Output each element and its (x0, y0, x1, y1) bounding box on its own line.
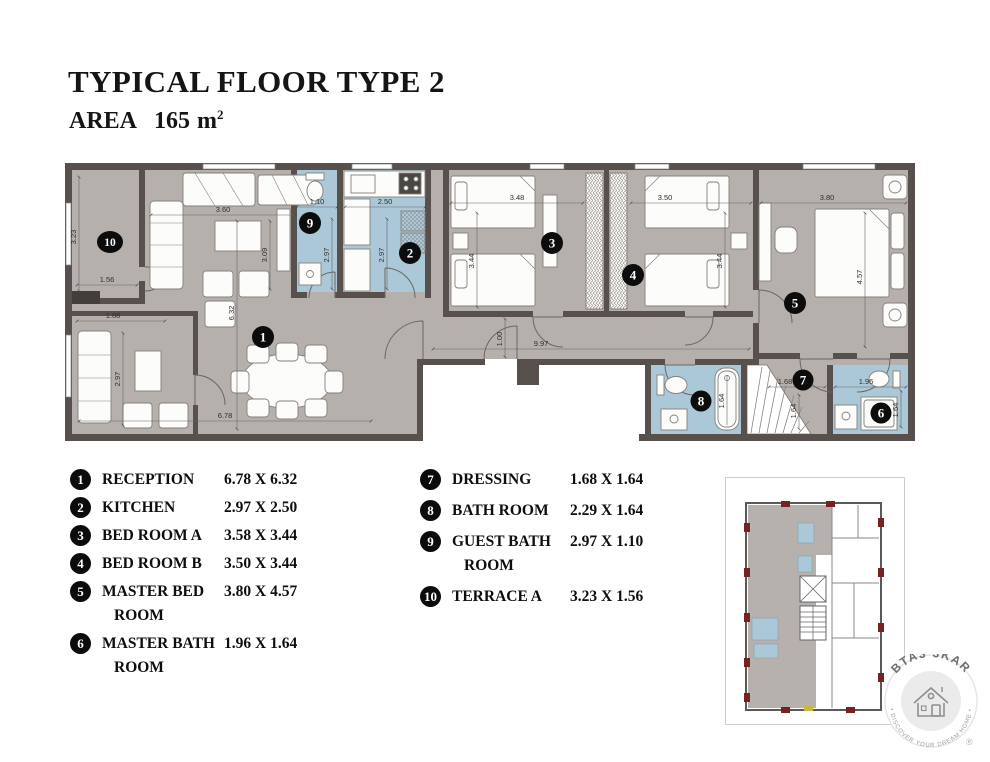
legend-item: 6 MASTER BATHROOM 1.96 X 1.64 (70, 633, 297, 678)
room-name: BED ROOM B (102, 555, 202, 572)
room-number-badge: 7 (420, 469, 441, 490)
dim-terrace-w: 1.56 (100, 275, 115, 284)
room-name: KITCHEN (102, 499, 175, 516)
dim-balcony-w: 1.68 (106, 311, 121, 320)
legend-item: 8 BATH ROOM 2.29 X 1.64 (420, 500, 643, 521)
area-unit: m (197, 108, 217, 134)
svg-text:10: 10 (104, 237, 116, 249)
room-dimensions: 3.58 X 3.44 (224, 525, 297, 546)
svg-text:1: 1 (260, 330, 267, 345)
room-dimensions: 3.50 X 3.44 (224, 553, 297, 574)
dim-corridor-w: 9.97 (534, 339, 549, 348)
dim-beda-h: 3.44 (467, 254, 476, 269)
legend-item: 9 GUEST BATHROOM 2.97 X 1.10 (420, 531, 643, 576)
room-number-badge: 10 (420, 586, 441, 607)
svg-text:6: 6 (878, 406, 885, 421)
room-name: TERRACE A (452, 588, 542, 605)
dim-terrace-h: 3.23 (69, 230, 78, 245)
key-plan-drawing (726, 478, 904, 724)
legend-item: 7 DRESSING 1.68 X 1.64 (420, 469, 643, 490)
room-name: MASTER BATH (102, 635, 215, 652)
room-number-badge: 5 (70, 581, 91, 602)
svg-text:9: 9 (307, 216, 314, 231)
dim-master-w: 3.80 (820, 193, 835, 202)
legend-item: 2 KITCHEN 2.97 X 2.50 (70, 497, 297, 518)
dim-kitchen-h: 2.97 (377, 248, 386, 263)
room-number-badge: 4 (70, 553, 91, 574)
dim-masterbath-w: 1.96 (859, 377, 874, 386)
dim-kitchen-w: 2.50 (378, 197, 393, 206)
legend-right-column: 7 DRESSING 1.68 X 1.64 8 BATH ROOM 2.29 … (420, 469, 643, 617)
legend-item: 3 BED ROOM A 3.58 X 3.44 (70, 525, 297, 546)
room-number-badge: 3 (70, 525, 91, 546)
dim-corridor-h: 1.00 (495, 332, 504, 347)
badge-guest-bath: 9 (299, 212, 321, 234)
room-dimensions: 1.96 X 1.64 (224, 633, 297, 654)
badge-bedroom-a: 3 (541, 232, 563, 254)
dim-dressing-w: 1.68 (778, 377, 793, 386)
legend-item: 1 RECEPTION 6.78 X 6.32 (70, 469, 297, 490)
room-dimensions: 3.23 X 1.56 (570, 586, 643, 607)
floor-plan-sheet: TYPICAL FLOOR TYPE 2 AREA165m2 (0, 0, 990, 762)
area-unit-exp: 2 (217, 107, 224, 122)
svg-text:4: 4 (630, 268, 637, 283)
room-name: BATH ROOM (452, 502, 549, 519)
room-name: RECEPTION (102, 471, 194, 488)
area-value: 165 (154, 108, 190, 134)
floor-plan-drawing: 3.23 1.56 1.68 2.97 3.60 3.09 6.32 6.78 … (65, 163, 915, 441)
dim-reception-top: 3.60 (216, 205, 231, 214)
room-number-badge: 2 (70, 497, 91, 518)
dim-bedb-h: 3.44 (715, 254, 724, 269)
page-title: TYPICAL FLOOR TYPE 2 (68, 64, 445, 100)
room-dimensions: 2.29 X 1.64 (570, 500, 643, 521)
room-dimensions: 2.97 X 2.50 (224, 497, 297, 518)
badge-kitchen: 2 (399, 242, 421, 264)
svg-text:7: 7 (800, 373, 807, 388)
room-name: BED ROOM A (102, 527, 202, 544)
brand-badge: BTA3 3KAR • DISCOVER YOUR DREAM HOME • (884, 654, 978, 748)
svg-text:8: 8 (698, 394, 705, 409)
badge-dressing: 7 (793, 370, 814, 391)
svg-text:3: 3 (549, 236, 556, 251)
area-line: AREA165m2 (69, 107, 224, 135)
dim-balcony-h: 2.97 (113, 372, 122, 387)
svg-text:5: 5 (792, 296, 799, 311)
badge-master-bedroom: 5 (784, 292, 806, 314)
dim-beda-w: 3.48 (510, 193, 525, 202)
badge-bedroom-b: 4 (622, 264, 644, 286)
room-dimensions: 3.80 X 4.57 (224, 581, 297, 602)
dim-tub-l: 1.64 (717, 394, 726, 409)
legend-item: 5 MASTER BEDROOM 3.80 X 4.57 (70, 581, 297, 626)
legend-item: 10 TERRACE A 3.23 X 1.56 (420, 586, 643, 607)
key-plan-inset (725, 477, 905, 725)
room-name: DRESSING (452, 471, 531, 488)
dim-masterbath-h: 1.64 (891, 403, 900, 418)
room-dimensions: 2.97 X 1.10 (570, 531, 643, 552)
badge-reception: 1 (252, 326, 274, 348)
room-number-badge: 9 (420, 531, 441, 552)
room-name: MASTER BED (102, 583, 204, 600)
dim-reception-w: 6.78 (218, 411, 233, 420)
area-label: AREA (69, 108, 137, 134)
room-number-badge: 6 (70, 633, 91, 654)
dim-guestbath-w: 1.10 (310, 197, 325, 206)
badge-terrace: 10 (97, 231, 123, 253)
svg-text:2: 2 (407, 246, 414, 261)
registered-mark: ® (966, 737, 973, 747)
badge-master-bath: 6 (871, 403, 892, 424)
legend-left-column: 1 RECEPTION 6.78 X 6.32 2 KITCHEN 2.97 X… (70, 469, 297, 685)
dim-reception-h: 6.32 (227, 306, 236, 321)
dim-master-h: 4.57 (855, 270, 864, 285)
dim-guestbath-h: 2.97 (322, 248, 331, 263)
room-dimensions: 6.78 X 6.32 (224, 469, 297, 490)
badge-bathroom: 8 (691, 391, 712, 412)
room-number-badge: 1 (70, 469, 91, 490)
room-dimensions: 1.68 X 1.64 (570, 469, 643, 490)
dim-dressing-h: 1.64 (789, 404, 798, 419)
dim-bedb-w: 3.50 (658, 193, 673, 202)
room-name: GUEST BATH (452, 533, 551, 550)
room-number-badge: 8 (420, 500, 441, 521)
dim-reception-side: 3.09 (260, 248, 269, 263)
legend-item: 4 BED ROOM B 3.50 X 3.44 (70, 553, 297, 574)
